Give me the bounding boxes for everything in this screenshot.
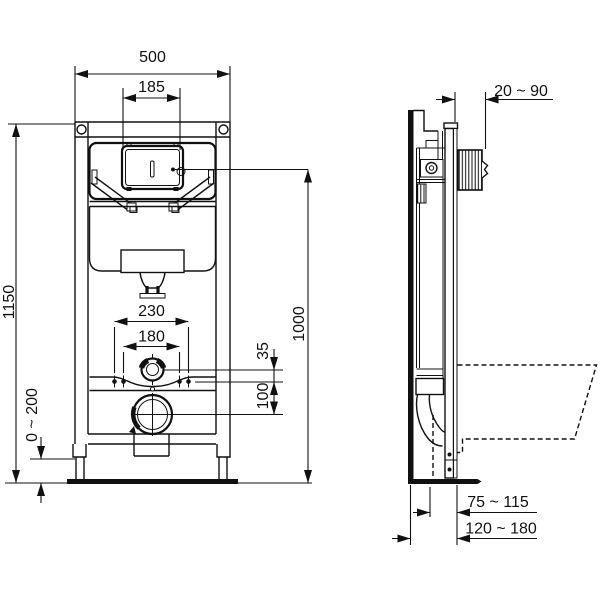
adjustable-feet: [73, 434, 230, 479]
cistern-sump: [121, 250, 184, 273]
dim-1000: 1000: [175, 170, 312, 484]
actuator-axis-point: [171, 168, 175, 172]
dim-offset-label: 35: [255, 342, 272, 360]
dim-foot-adjust-label: 0 ~ 200: [24, 388, 41, 442]
dim-width-label: 500: [139, 49, 166, 66]
flush-funnel: [140, 273, 165, 289]
front-view: 500 185 1150 0 ~ 200 230: [1, 49, 312, 503]
bowl-outline: [458, 365, 597, 453]
outlet-socket: [129, 393, 174, 436]
mounting-hole-right: [219, 125, 228, 134]
dim-0-200: 0 ~ 200: [24, 388, 75, 503]
technical-drawing-page: 500 185 1150 0 ~ 200 230: [0, 0, 600, 600]
dim-wall-distance-label: 20 ~ 90: [494, 83, 548, 100]
flush-housing-block: [458, 150, 488, 190]
cistern-front: [90, 202, 216, 299]
inlet-fitting: [142, 354, 164, 385]
mounting-hole-left: [77, 125, 86, 134]
side-view: 20 ~ 90 75 ~ 115 120 ~ 180: [392, 83, 597, 545]
dim-actuator-height-label: 1000: [291, 306, 308, 342]
actuator-opening: [122, 146, 183, 189]
installation-frame-drawing: 500 185 1150 0 ~ 200 230: [0, 0, 600, 600]
dim-outlet-near-label: 75 ~ 115: [467, 494, 529, 511]
dim-185: 185: [123, 79, 180, 150]
dim-plate-width-label: 185: [138, 79, 165, 96]
cistern-side: [416, 131, 445, 479]
dim-fixing-inner-label: 180: [138, 329, 165, 346]
dim-outlet-far-label: 120 ~ 180: [465, 521, 537, 538]
dim-fixing-outer-label: 230: [138, 303, 165, 320]
frame-rail-side: [444, 123, 458, 478]
floor-plate-side: [408, 479, 482, 484]
floor-plate: [67, 479, 238, 484]
dim-height-label: 1150: [1, 285, 18, 320]
dim-35-100: 35 100: [163, 342, 283, 415]
dim-outlet-drop-label: 100: [255, 383, 272, 410]
